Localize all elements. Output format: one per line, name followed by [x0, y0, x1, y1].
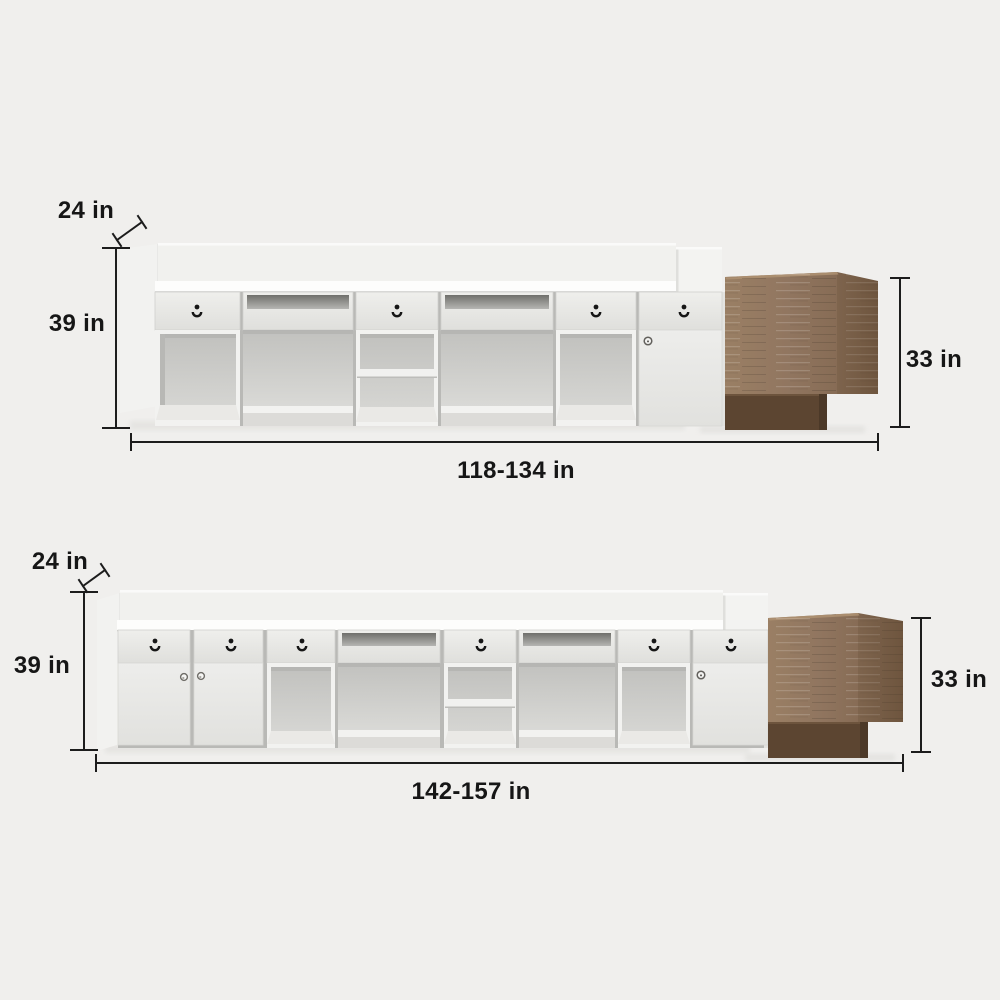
desk-variant-1-illustration	[120, 243, 878, 433]
depth-dimension-label: 24 in	[32, 548, 88, 576]
desk2-knee-space-2	[519, 663, 615, 730]
desk2-drawer-2	[194, 630, 263, 663]
desk1-back-panel	[158, 243, 676, 281]
knob-icon	[181, 674, 188, 681]
desk2-left-side-panel	[97, 593, 120, 751]
lock-icon	[697, 671, 705, 679]
height-dimension-label: 39 in	[49, 310, 105, 338]
desk1-drawer-3	[556, 292, 636, 330]
desk2-wood-plinth	[768, 722, 868, 758]
return-height-dimension-label: 33 in	[931, 666, 987, 694]
desk2-drawer-1	[118, 630, 190, 663]
desk2-drawer-4	[444, 630, 516, 663]
desk1-knee-space-1	[243, 330, 353, 406]
desk1-drawer-2	[356, 292, 438, 330]
desk2-cabinet-door-1	[118, 663, 190, 745]
desk1-drawer-4	[639, 292, 722, 330]
knob-icon	[198, 673, 205, 680]
desk2-back-panel	[120, 590, 723, 620]
desk2-drawer-5	[618, 630, 690, 663]
return-height-dimension-label: 33 in	[906, 346, 962, 374]
desk1-middle-shelf	[357, 369, 437, 377]
desk2-counter-top	[117, 620, 723, 631]
desk2-middle-shelf	[445, 699, 515, 707]
desk2-right-end-block	[723, 593, 768, 630]
desk1-left-side-panel	[120, 244, 158, 413]
width-range-dimension-label: 118-134 in	[457, 457, 575, 485]
desk2-drawer-3	[267, 630, 335, 663]
desk1-open-slot-1	[247, 295, 349, 309]
desk2-open-slot-1	[342, 633, 436, 646]
desk2-open-slot-2	[523, 633, 611, 646]
depth-dim-line	[117, 222, 142, 240]
desk1-drawer-1	[155, 292, 240, 330]
desk-variant-2-illustration	[97, 590, 903, 761]
desk1-cabinet-door	[639, 330, 722, 426]
width-range-dimension-label: 142-157 in	[411, 778, 530, 806]
desk1-open-slot-2	[445, 295, 549, 309]
lock-icon	[644, 337, 652, 345]
desk1-counter-top	[155, 281, 676, 292]
desk2-drawer-6	[693, 630, 768, 663]
product-dimensions-diagram: 24 in 39 in 33 in 118-134 in 24 in 39 in…	[0, 0, 1000, 1000]
desk1-wood-plinth	[725, 394, 827, 430]
depth-dimension-label: 24 in	[58, 197, 114, 225]
desk1-knee-space-2	[441, 330, 553, 406]
height-dimension-label: 39 in	[14, 652, 70, 680]
desk1-right-end-block	[676, 247, 722, 292]
desk-illustrations	[0, 0, 1000, 1000]
desk2-knee-space-1	[338, 663, 440, 730]
